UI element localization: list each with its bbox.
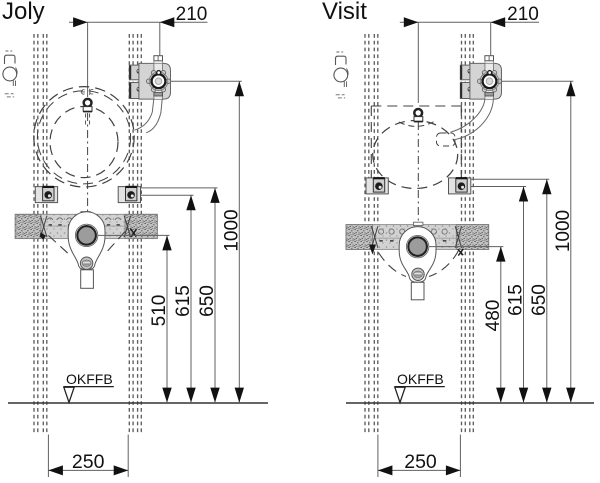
svg-text:480: 480 — [483, 300, 504, 332]
svg-text:250: 250 — [72, 451, 105, 473]
svg-text:615: 615 — [506, 284, 527, 316]
svg-text:1000: 1000 — [553, 210, 574, 252]
svg-text:210: 210 — [176, 4, 208, 25]
svg-text:Joly: Joly — [2, 0, 45, 25]
svg-text:1000: 1000 — [222, 209, 243, 251]
svg-text:OKFFB: OKFFB — [397, 371, 444, 387]
svg-text:250: 250 — [404, 451, 437, 473]
svg-text:210: 210 — [507, 4, 539, 25]
svg-text:510: 510 — [149, 295, 170, 327]
svg-text:OKFFB: OKFFB — [66, 371, 113, 387]
svg-text:Visit: Visit — [322, 0, 367, 25]
svg-text:615: 615 — [173, 285, 194, 317]
svg-text:650: 650 — [197, 285, 218, 317]
svg-text:650: 650 — [529, 284, 550, 316]
